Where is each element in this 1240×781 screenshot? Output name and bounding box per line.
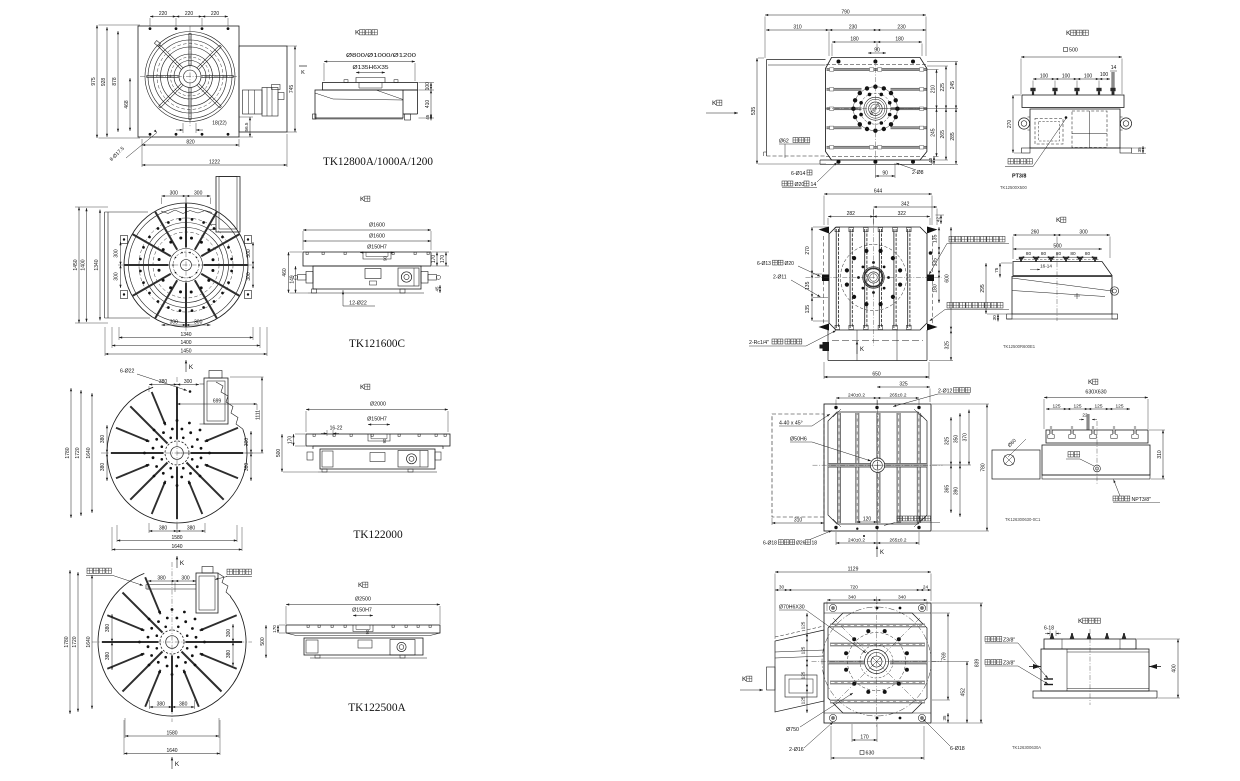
svg-text:630: 630	[866, 751, 875, 757]
svg-text:TK122000: TK122000	[353, 529, 403, 541]
svg-text:769: 769	[942, 652, 948, 661]
svg-text:310: 310	[793, 24, 802, 30]
svg-text:K: K	[360, 384, 365, 391]
svg-text:K: K	[860, 347, 864, 353]
svg-text:135: 135	[932, 258, 938, 267]
svg-text:2-Rc1/4": 2-Rc1/4"	[749, 340, 769, 346]
svg-text:6-18: 6-18	[1044, 626, 1054, 632]
svg-text:125: 125	[800, 696, 805, 704]
svg-text:6-Ø22: 6-Ø22	[120, 369, 135, 375]
svg-text:325: 325	[944, 341, 950, 350]
svg-text:90: 90	[874, 47, 880, 53]
svg-text:K: K	[1056, 217, 1061, 224]
svg-text:380: 380	[105, 652, 111, 661]
svg-text:460: 460	[282, 268, 288, 277]
svg-text:2-Ø12: 2-Ø12	[938, 389, 953, 395]
svg-text:380: 380	[179, 701, 188, 707]
svg-text:380: 380	[100, 463, 106, 472]
svg-text:1720: 1720	[75, 447, 81, 458]
svg-text:1222: 1222	[209, 159, 220, 165]
svg-text:300: 300	[184, 379, 193, 385]
svg-text:Ø150H7: Ø150H7	[367, 245, 387, 251]
svg-text:Ø20: Ø20	[795, 182, 805, 188]
svg-text:16-22: 16-22	[330, 426, 343, 432]
svg-text:Ø70H6X30: Ø70H6X30	[779, 605, 805, 611]
svg-text:400: 400	[1172, 664, 1178, 673]
svg-text:260: 260	[1031, 229, 1040, 235]
svg-text:90: 90	[365, 629, 370, 634]
svg-text:839: 839	[975, 659, 981, 668]
svg-text:K: K	[360, 196, 365, 203]
svg-text:6-Ø14: 6-Ø14	[791, 171, 806, 177]
svg-text:390: 390	[954, 487, 960, 496]
svg-text:TK12800A/1000A/1200: TK12800A/1000A/1200	[323, 156, 433, 168]
svg-text:170: 170	[288, 436, 294, 445]
svg-text:380: 380	[159, 379, 168, 385]
svg-text:380: 380	[244, 463, 250, 472]
svg-text:6-Ø13: 6-Ø13	[757, 261, 771, 267]
svg-text:80: 80	[1026, 251, 1032, 256]
svg-text:24: 24	[923, 584, 929, 589]
svg-text:285: 285	[950, 132, 956, 141]
svg-text:370: 370	[963, 433, 969, 442]
svg-text:380: 380	[157, 575, 166, 581]
svg-text:30: 30	[779, 584, 785, 589]
svg-text:45: 45	[434, 286, 439, 291]
svg-text:4-40 x 45°: 4-40 x 45°	[779, 421, 803, 427]
svg-text:180: 180	[932, 284, 938, 293]
svg-text:6-Ø18: 6-Ø18	[950, 746, 965, 752]
svg-text:380: 380	[226, 650, 232, 659]
svg-text:220: 220	[211, 11, 220, 17]
svg-text:644: 644	[874, 188, 883, 194]
svg-text:K: K	[189, 364, 194, 371]
svg-text:630X630: 630X630	[1085, 390, 1106, 396]
svg-text:16-14: 16-14	[1040, 264, 1052, 269]
svg-text:468: 468	[124, 100, 130, 109]
svg-text:240±0.2: 240±0.2	[848, 392, 865, 397]
svg-text:1450: 1450	[73, 259, 79, 270]
svg-text:300: 300	[194, 319, 203, 325]
svg-text:380: 380	[159, 525, 168, 531]
svg-text:Ø50H6: Ø50H6	[790, 437, 807, 443]
svg-text:30: 30	[992, 315, 997, 321]
svg-text:2-Ø16: 2-Ø16	[789, 747, 804, 753]
svg-text:300: 300	[244, 438, 250, 447]
svg-text:K: K	[742, 676, 747, 683]
svg-text:PT3/8: PT3/8	[1012, 174, 1026, 180]
svg-text:120: 120	[863, 516, 872, 522]
svg-text:18: 18	[812, 541, 818, 547]
svg-text:100: 100	[1084, 73, 1093, 79]
svg-text:300: 300	[114, 249, 120, 258]
svg-text:35: 35	[1137, 147, 1142, 153]
svg-text:Ø2000: Ø2000	[370, 402, 386, 408]
svg-text:380: 380	[105, 624, 111, 633]
svg-text:1780: 1780	[65, 447, 71, 458]
svg-text:300: 300	[194, 190, 203, 196]
svg-text:TK121600C: TK121600C	[349, 338, 405, 350]
svg-text:342: 342	[901, 201, 910, 207]
svg-text:878: 878	[112, 77, 118, 86]
svg-text:170: 170	[860, 734, 869, 740]
svg-text:18(22): 18(22)	[212, 121, 227, 127]
svg-text:310: 310	[1157, 450, 1163, 459]
svg-text:1400: 1400	[180, 340, 191, 346]
svg-text:1780: 1780	[64, 636, 70, 647]
svg-text:14: 14	[1111, 65, 1117, 71]
svg-text:350: 350	[954, 435, 960, 444]
svg-text:500: 500	[276, 449, 282, 458]
svg-text:125: 125	[1073, 403, 1081, 409]
svg-text:500: 500	[260, 637, 266, 646]
svg-text:1580: 1580	[171, 535, 182, 541]
svg-text:380: 380	[100, 435, 106, 444]
svg-text:K: K	[712, 100, 717, 107]
svg-text:380: 380	[187, 525, 196, 531]
svg-text:170: 170	[431, 255, 437, 264]
svg-text:270: 270	[805, 246, 811, 255]
svg-text:310: 310	[794, 517, 803, 523]
svg-text:K: K	[1078, 618, 1083, 625]
svg-text:1640: 1640	[171, 544, 182, 550]
svg-text:300: 300	[246, 272, 252, 281]
svg-text:265±0.2: 265±0.2	[890, 537, 907, 542]
svg-text:1720: 1720	[72, 636, 78, 647]
svg-text:149: 149	[289, 275, 295, 284]
svg-text:TK126300630A: TK126300630A	[1012, 745, 1041, 750]
svg-text:40: 40	[928, 157, 933, 163]
svg-text:K: K	[355, 30, 360, 37]
svg-text:Ø26: Ø26	[796, 541, 806, 547]
svg-text:2-Ø11: 2-Ø11	[773, 275, 787, 281]
svg-text:282: 282	[847, 211, 856, 217]
svg-text:1640: 1640	[166, 748, 177, 754]
svg-text:75: 75	[994, 267, 999, 273]
svg-text:300: 300	[246, 249, 252, 258]
svg-text:42: 42	[935, 217, 940, 223]
svg-text:245: 245	[930, 128, 936, 137]
svg-text:14: 14	[811, 182, 817, 188]
svg-text:535: 535	[751, 107, 757, 116]
svg-text:Ø1600: Ø1600	[369, 234, 385, 240]
svg-text:135: 135	[932, 234, 938, 243]
svg-text:125: 125	[800, 671, 805, 679]
svg-text:2-Ø8: 2-Ø8	[912, 170, 924, 176]
svg-text:100: 100	[1062, 73, 1071, 79]
svg-text:170: 170	[440, 255, 446, 264]
svg-text:35: 35	[942, 715, 947, 721]
svg-text:300: 300	[181, 575, 190, 581]
svg-text:90: 90	[882, 170, 888, 176]
svg-text:NPT3/8": NPT3/8"	[1132, 497, 1152, 503]
svg-text:210: 210	[930, 85, 936, 94]
svg-text:300: 300	[170, 319, 179, 325]
svg-text:220: 220	[185, 11, 194, 17]
svg-text:1640: 1640	[86, 447, 92, 458]
svg-text:TK126300630-0C1: TK126300630-0C1	[1005, 517, 1041, 522]
svg-text:Ø750: Ø750	[786, 727, 799, 733]
svg-text:Ø135H6X35: Ø135H6X35	[353, 65, 389, 71]
svg-text:125: 125	[1115, 403, 1123, 409]
svg-text:TK122500A: TK122500A	[348, 702, 406, 714]
svg-text:Ø150H7: Ø150H7	[367, 417, 387, 423]
svg-text:1129: 1129	[848, 566, 859, 572]
svg-text:300: 300	[114, 272, 120, 281]
svg-text:500: 500	[1053, 243, 1062, 249]
svg-text:100: 100	[425, 82, 431, 91]
svg-text:380: 380	[157, 701, 166, 707]
svg-text:125: 125	[1052, 403, 1060, 409]
svg-text:928: 928	[101, 78, 107, 87]
svg-text:225: 225	[940, 83, 946, 92]
svg-text:K: K	[358, 582, 363, 589]
svg-text:452: 452	[961, 688, 967, 697]
svg-text:265±0.2: 265±0.2	[890, 392, 907, 397]
svg-text:K: K	[880, 550, 884, 556]
svg-text:1340: 1340	[94, 259, 100, 270]
svg-text:K: K	[1066, 30, 1071, 37]
svg-text:820: 820	[186, 139, 195, 145]
svg-text:TK12500X500: TK12500X500	[1000, 185, 1027, 190]
svg-text:790: 790	[841, 9, 850, 15]
svg-text:56.5: 56.5	[244, 122, 249, 131]
svg-text:180: 180	[850, 36, 859, 42]
svg-text:340: 340	[898, 594, 906, 600]
svg-text:K: K	[175, 761, 180, 768]
svg-text:K: K	[180, 560, 185, 567]
svg-text:699: 699	[213, 398, 222, 404]
svg-text:125: 125	[800, 646, 805, 654]
svg-text:170: 170	[272, 625, 277, 633]
svg-text:300: 300	[170, 190, 179, 196]
svg-text:45: 45	[425, 114, 430, 120]
svg-text:80: 80	[1041, 251, 1047, 256]
svg-text:340: 340	[848, 594, 856, 600]
svg-text:365: 365	[945, 485, 951, 494]
svg-text:300: 300	[1079, 229, 1088, 235]
svg-text:500: 500	[1069, 48, 1078, 54]
svg-text:325: 325	[945, 437, 951, 446]
svg-text:245: 245	[950, 81, 956, 90]
svg-text:300: 300	[226, 629, 232, 638]
svg-text:100: 100	[1100, 72, 1109, 78]
svg-text:1450: 1450	[180, 348, 191, 354]
svg-text:100: 100	[1040, 73, 1049, 79]
svg-text:Z3/8": Z3/8"	[1003, 661, 1015, 667]
svg-text:230: 230	[897, 24, 906, 30]
svg-text:1111: 1111	[256, 410, 262, 420]
svg-text:125: 125	[1094, 403, 1102, 409]
svg-text:325: 325	[899, 381, 908, 387]
svg-text:975: 975	[91, 77, 97, 86]
svg-text:1400: 1400	[81, 259, 87, 270]
svg-text:230: 230	[849, 24, 858, 30]
svg-text:Ø20: Ø20	[785, 261, 795, 267]
svg-text:720: 720	[850, 584, 858, 589]
svg-text:1340: 1340	[180, 332, 191, 338]
svg-text:K: K	[1088, 379, 1093, 386]
svg-text:K: K	[301, 70, 305, 76]
svg-text:780: 780	[981, 463, 987, 472]
svg-text:6-Ø18: 6-Ø18	[763, 541, 777, 547]
svg-text:240±0.2: 240±0.2	[848, 537, 865, 542]
svg-text:80: 80	[1085, 251, 1091, 256]
svg-text:Ø800/Ø1000/Ø1200: Ø800/Ø1000/Ø1200	[346, 53, 416, 59]
svg-text:90: 90	[382, 438, 387, 443]
svg-text:220: 220	[159, 11, 168, 17]
svg-text:270: 270	[1007, 120, 1013, 129]
svg-text:135: 135	[805, 281, 811, 290]
svg-text:1640: 1640	[86, 636, 92, 647]
svg-text:135: 135	[805, 305, 811, 314]
svg-text:Ø150H7: Ø150H7	[352, 608, 372, 614]
svg-text:12-Ø22: 12-Ø22	[349, 301, 367, 307]
svg-text:650: 650	[872, 371, 881, 377]
svg-text:80: 80	[1070, 251, 1076, 256]
svg-text:600: 600	[944, 274, 950, 283]
svg-text:125: 125	[800, 621, 805, 629]
svg-text:Z3/8": Z3/8"	[1003, 638, 1015, 644]
svg-text:410: 410	[425, 100, 431, 109]
svg-text:Ø2500: Ø2500	[355, 597, 371, 603]
svg-text:1580: 1580	[166, 730, 177, 736]
svg-text:322: 322	[898, 211, 907, 217]
svg-text:295: 295	[980, 284, 986, 293]
svg-text:745: 745	[289, 85, 295, 94]
svg-text:TK12500R600E1: TK12500R600E1	[1003, 344, 1036, 349]
svg-text:90: 90	[383, 256, 388, 261]
svg-text:Ø1600: Ø1600	[369, 223, 385, 229]
svg-text:180: 180	[895, 36, 904, 42]
svg-text:Ø62: Ø62	[779, 139, 789, 145]
svg-text:265: 265	[940, 130, 946, 139]
svg-text:80: 80	[1056, 251, 1062, 256]
